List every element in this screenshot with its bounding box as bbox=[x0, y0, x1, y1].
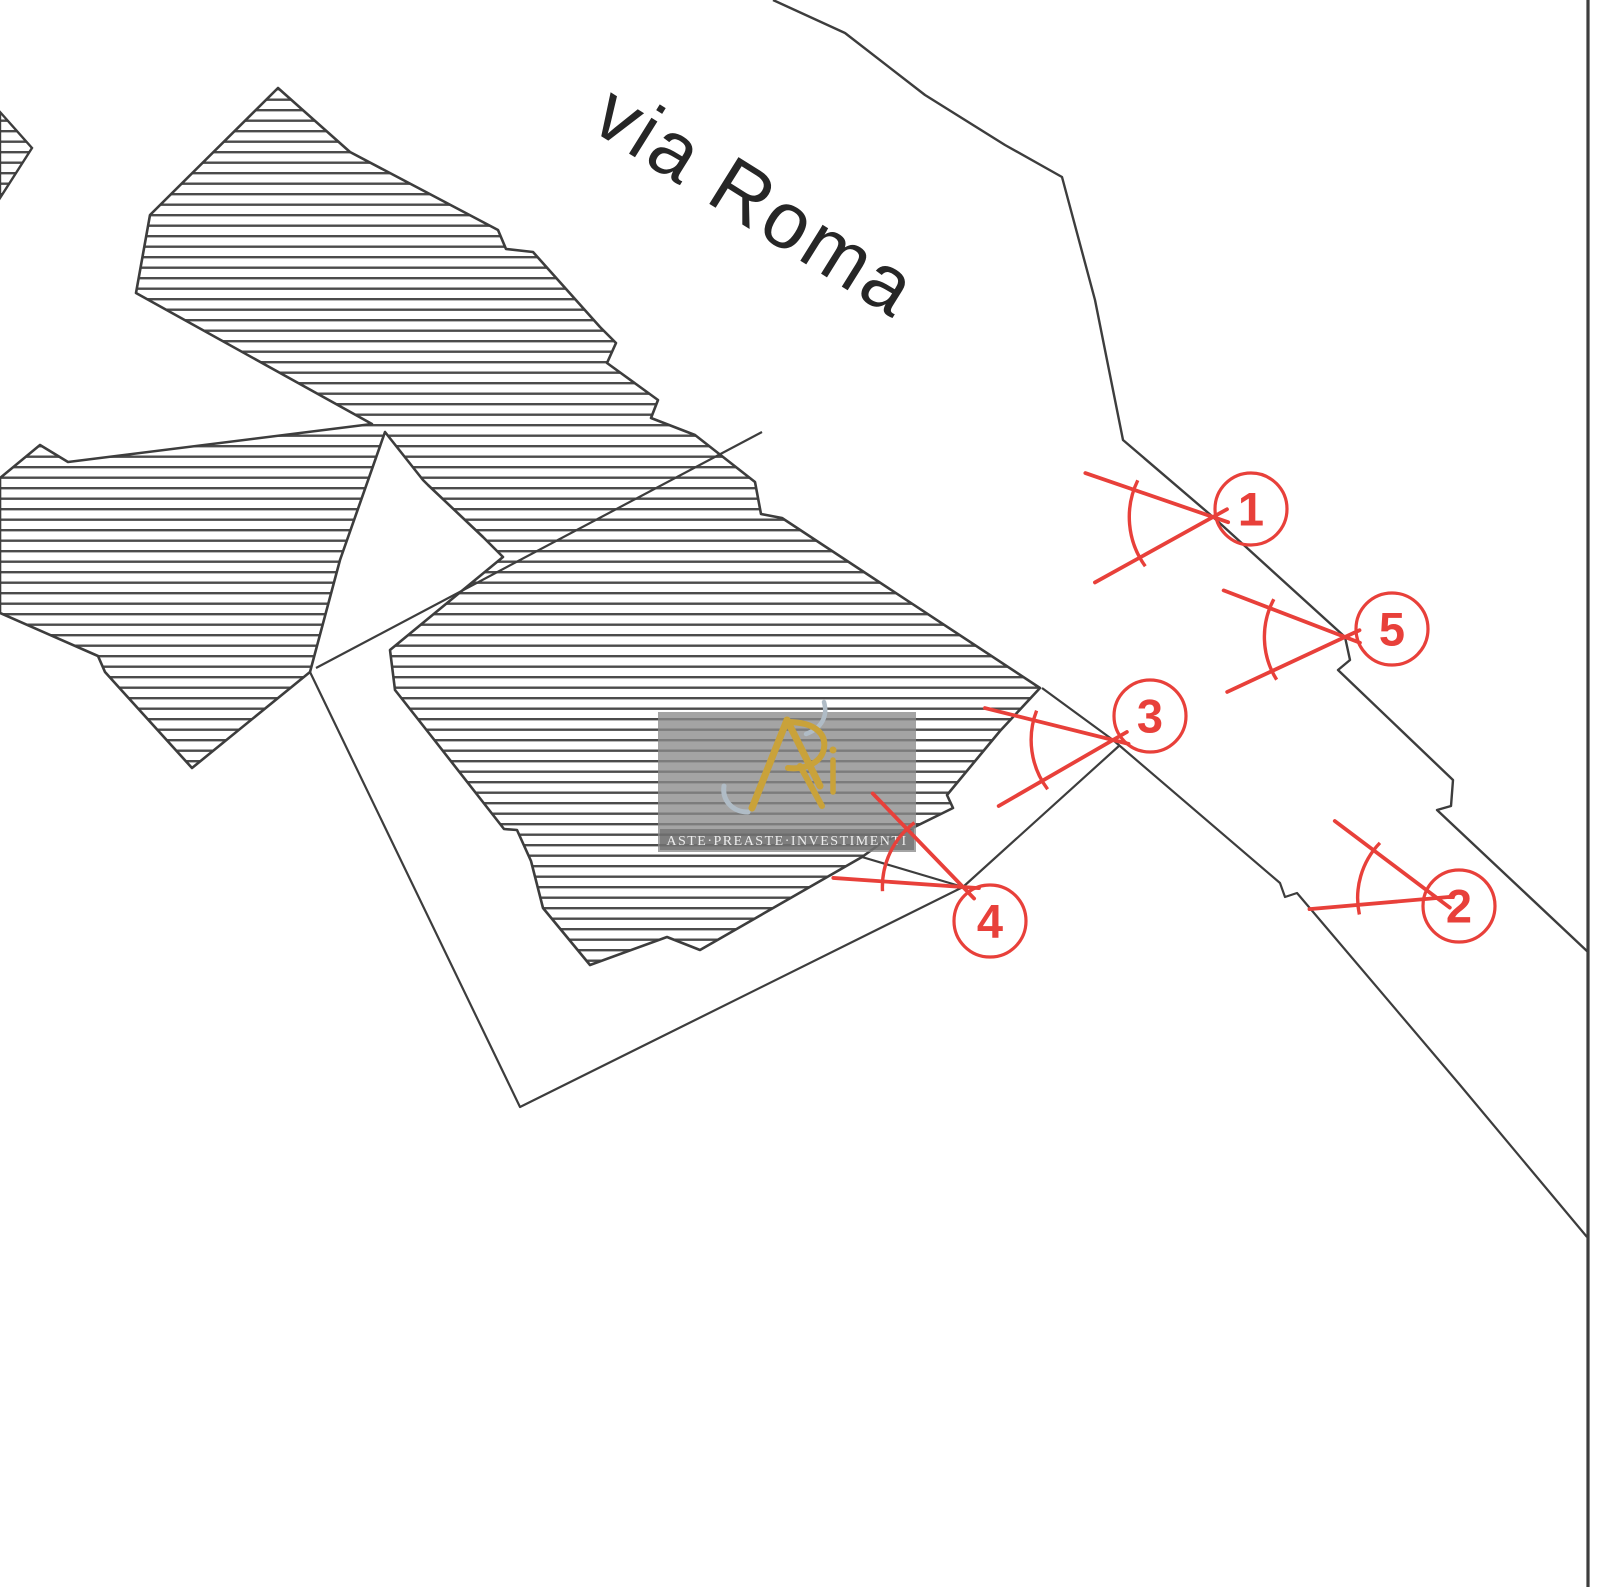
view-cone-line bbox=[1095, 509, 1227, 582]
view-cone-line bbox=[1224, 590, 1360, 642]
view-cone-line bbox=[1335, 821, 1450, 908]
site-plan-svg: via Roma ASTE·PREASTE·INVESTIMENTI 15342 bbox=[0, 0, 1600, 1587]
view-cone-line bbox=[985, 708, 1129, 744]
marker-number-label: 2 bbox=[1446, 880, 1472, 933]
boundary-stepped-lower bbox=[1042, 688, 1587, 1237]
hatched-annex-fragment bbox=[0, 112, 32, 198]
view-cone-line bbox=[999, 732, 1127, 806]
view-cone-line bbox=[1085, 473, 1228, 522]
marker-number-label: 3 bbox=[1137, 690, 1163, 743]
marker-number-label: 4 bbox=[977, 895, 1003, 948]
view-cone-line bbox=[1309, 897, 1452, 910]
viewpoint-marker-5: 5 bbox=[1224, 590, 1428, 692]
view-cone-line bbox=[1227, 630, 1359, 692]
watermark: ASTE·PREASTE·INVESTIMENTI bbox=[658, 702, 916, 852]
watermark-caption: ASTE·PREASTE·INVESTIMENTI bbox=[666, 834, 907, 849]
marker-number-label: 1 bbox=[1238, 483, 1264, 536]
street-label: via Roma bbox=[579, 67, 933, 334]
site-plan-page: via Roma ASTE·PREASTE·INVESTIMENTI 15342 bbox=[0, 0, 1600, 1587]
marker-number-label: 5 bbox=[1379, 603, 1405, 656]
viewpoint-marker-1: 1 bbox=[1085, 473, 1287, 582]
